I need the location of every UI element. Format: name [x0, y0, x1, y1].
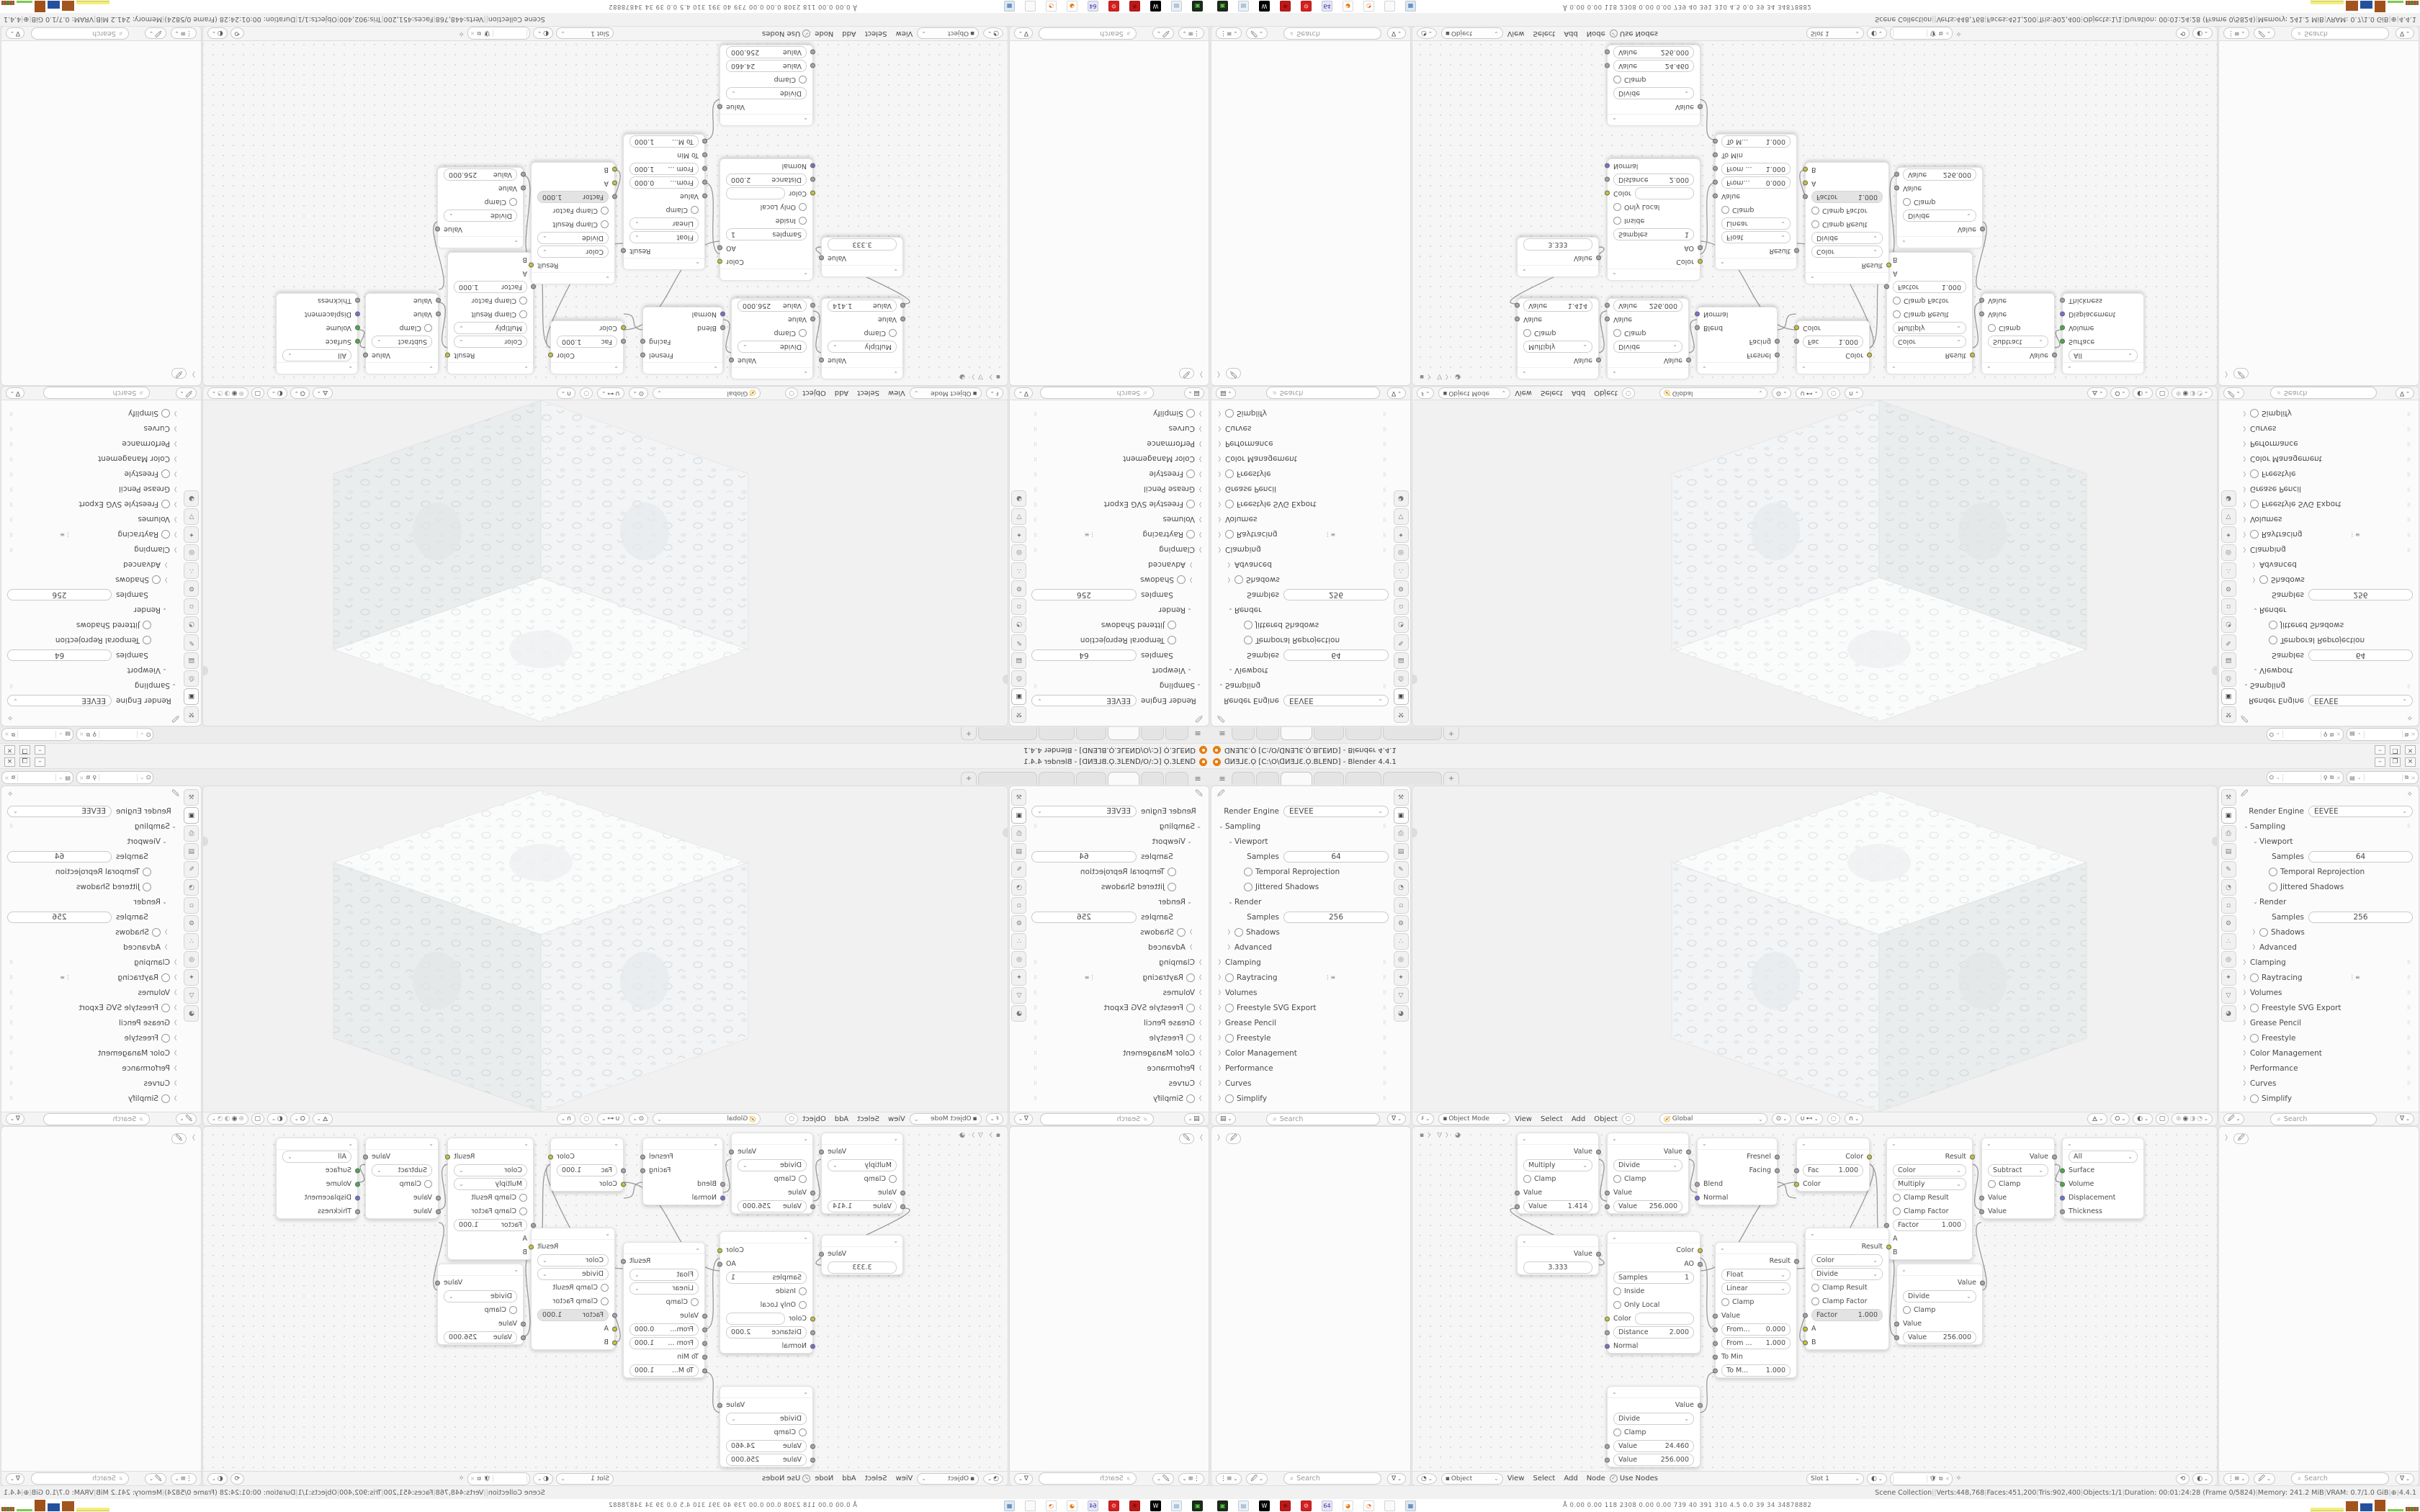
properties-tab-8-icon[interactable]: ∴	[2221, 562, 2236, 579]
shader-node-math-divide-c[interactable]: ⌄ValueDivide⌄ClampValue24.460Value256.00…	[720, 1386, 813, 1467]
node-socket[interactable]	[1886, 263, 1891, 268]
properties-tab-7-icon[interactable]: ⚙	[184, 580, 200, 597]
unlink-icon[interactable]: ×	[79, 732, 84, 738]
node-socket[interactable]	[702, 166, 707, 171]
material-preview-icon[interactable]: ◐⌄	[1867, 1473, 1887, 1485]
prop-color-management[interactable]: 〉Color Management⠿	[7, 451, 178, 467]
node-socket[interactable]	[1713, 166, 1718, 171]
node-socket[interactable]	[1713, 180, 1718, 185]
prop-clamping[interactable]: 〉Clamping⠿	[7, 542, 178, 557]
maximize-button[interactable]: ❐	[19, 745, 30, 755]
properties-tab-4-icon[interactable]: ✎	[184, 634, 200, 651]
node-socket[interactable]	[355, 325, 360, 330]
node-select[interactable]: Divide⌄	[726, 87, 807, 99]
taskbar-app-notepad[interactable]: ▤	[1171, 1, 1182, 12]
node-socket[interactable]	[1794, 339, 1799, 344]
gizmo-toggle-button[interactable]: 🜁⌄	[2087, 387, 2107, 399]
viewlayer-selector[interactable]: ▤⌄ ⧉ ×	[2347, 728, 2419, 741]
node-socket[interactable]	[810, 1190, 815, 1195]
properties-tab-6-icon[interactable]: ▫	[184, 598, 200, 615]
shading-icon-2[interactable]: ◑	[2190, 1115, 2195, 1122]
prop-render[interactable]: ⌄Render	[2242, 894, 2413, 909]
properties-tab-3-icon[interactable]: ▤	[1394, 652, 1409, 669]
shader-type-select[interactable]: ▪ Object⌄	[917, 28, 979, 40]
prop-freestyle-svg-export[interactable]: 〉Freestyle SVG Export⠿	[1217, 1000, 1389, 1015]
search-input[interactable]: ⌕ Search	[2291, 27, 2389, 40]
node-value-field[interactable]: To M...1.000	[629, 135, 699, 148]
prop-grease-pencil[interactable]: 〉Grease Pencil⠿	[1031, 482, 1203, 497]
taskbar-app-settings-red-2[interactable]: ⚙	[1301, 1500, 1312, 1511]
properties-tab-5-icon[interactable]: ◔	[184, 616, 200, 633]
properties-tab-9-icon[interactable]: ◎	[1394, 544, 1409, 561]
node-collapse-icon[interactable]: ⌄	[1982, 362, 2054, 374]
copy-icon[interactable]: ⧉	[86, 774, 91, 781]
prop-samples[interactable]: Samples64	[7, 849, 178, 864]
prop-simplify[interactable]: 〉Simplify⠿	[7, 406, 178, 421]
prop-jittered-shadows[interactable]: Jittered Shadows	[1217, 618, 1389, 633]
properties-tab-12-icon[interactable]: ◕	[184, 1005, 200, 1022]
node-socket[interactable]	[2060, 325, 2065, 330]
node-socket[interactable]	[1970, 353, 1975, 358]
node-slider[interactable]: Samples1	[726, 1272, 807, 1284]
taskbar-app-firefox[interactable]: ◔	[1046, 1, 1057, 12]
node-collapse-icon[interactable]: ⌄	[1897, 236, 1982, 248]
prop-curves[interactable]: 〉Curves⠿	[2242, 421, 2413, 436]
prop-shadows[interactable]: 〉Shadows	[2242, 572, 2413, 588]
shader-view-menu[interactable]: View	[1507, 30, 1525, 37]
copy-icon[interactable]: ⧉	[2405, 731, 2409, 738]
node-collapse-icon[interactable]: ⌄	[822, 367, 902, 379]
node-collapse-icon[interactable]: ⌄	[1518, 1236, 1598, 1247]
prop-advanced[interactable]: 〉Advanced	[7, 940, 178, 955]
prop-render[interactable]: ⌄Render	[7, 894, 178, 909]
toolbar-handle[interactable]	[1003, 675, 1008, 684]
node-checkbox[interactable]	[799, 203, 807, 211]
node-socket[interactable]	[640, 1154, 645, 1159]
node-checkbox[interactable]	[889, 1175, 897, 1183]
collapsed-panel[interactable]: 〉 🖉	[2225, 369, 2249, 380]
prop-performance[interactable]: 〉Performance⠿	[1217, 1061, 1389, 1076]
properties-tab-12-icon[interactable]: ◕	[1012, 490, 1027, 507]
shader-add-menu[interactable]: Add	[842, 1475, 856, 1482]
node-socket[interactable]	[1979, 312, 1984, 317]
unlink-icon[interactable]: ×	[470, 30, 475, 37]
prop-grease-pencil[interactable]: 〉Grease Pencil⠿	[1031, 1015, 1203, 1030]
properties-tab-3-icon[interactable]: ▤	[1012, 652, 1027, 669]
render-preview-button[interactable]: ▢	[251, 1113, 264, 1125]
copy-icon[interactable]: ⧉	[12, 731, 16, 738]
shader-node-value[interactable]: ⌄Value3.333	[1517, 237, 1599, 277]
node-checkbox[interactable]	[1613, 1175, 1621, 1183]
prop-freestyle-svg-export[interactable]: 〉Freestyle SVG Export⠿	[2242, 497, 2413, 512]
shader-node-math-multiply[interactable]: ⌄ValueMultiply⌄ClampValueValue1.414	[821, 298, 903, 379]
prop-grease-pencil[interactable]: 〉Grease Pencil⠿	[1217, 482, 1389, 497]
shader-node-ambient-occlusion[interactable]: ⌄ColorAOSamples1InsideOnly LocalColorDis…	[1607, 1231, 1700, 1354]
search-input[interactable]: ⌕ Search	[1039, 27, 1137, 40]
copy-icon[interactable]: ⧉	[12, 774, 16, 781]
node-socket[interactable]	[531, 1223, 536, 1228]
node-socket[interactable]	[521, 1335, 526, 1340]
node-collapse-icon[interactable]: ⌄	[1716, 258, 1796, 269]
properties-tab-10-icon[interactable]: ✦	[1012, 969, 1027, 986]
properties-tab-10-icon[interactable]: ✦	[2221, 526, 2236, 543]
shader-node-map-range[interactable]: ⌄ResultFloat⌄Linear⌄ClampValueFrom...0.0…	[623, 134, 705, 270]
node-checkbox[interactable]	[1893, 310, 1901, 318]
node-select[interactable]: All⌄	[2069, 1151, 2138, 1163]
node-socket[interactable]	[1515, 303, 1520, 308]
shader-view-menu[interactable]: View	[1507, 1475, 1525, 1482]
node-checkbox[interactable]	[424, 324, 432, 332]
node-select[interactable]: Divide⌄	[444, 210, 517, 222]
prop-shadows[interactable]: 〉Shadows	[1217, 572, 1389, 588]
properties-tab-10-icon[interactable]: ✦	[1394, 969, 1409, 986]
prop-color-management[interactable]: 〉Color Management⠿	[2242, 1045, 2413, 1061]
prop-curves[interactable]: 〉Curves⠿	[1031, 1076, 1203, 1091]
minimize-button[interactable]: –	[35, 745, 45, 755]
node-select[interactable]: Color⌄	[537, 1254, 609, 1266]
filter-button[interactable]: ∇⌄	[1014, 28, 1033, 40]
shader-add-menu[interactable]: Add	[842, 30, 856, 37]
node-socket[interactable]	[819, 256, 824, 261]
properties-tab-12-icon[interactable]: ◕	[184, 490, 200, 507]
tray-icon-brown-1[interactable]	[2346, 1501, 2358, 1511]
properties-tab-8-icon[interactable]: ∴	[1012, 933, 1027, 950]
shader-node-math-divide-a[interactable]: ⌄ValueDivide⌄ClampValueValue256.000	[731, 1133, 813, 1214]
editor-type-button[interactable]: ⋮≡⌄	[1216, 28, 1242, 40]
node-value-field[interactable]: Value256.000	[738, 300, 807, 312]
sidebar-handle[interactable]	[2212, 837, 2217, 846]
node-socket[interactable]	[355, 1195, 360, 1200]
tray-icon-blue[interactable]	[2360, 1, 2372, 9]
prop-raytracing[interactable]: 〉Raytracing⋮≡⠿	[2242, 970, 2413, 985]
node-value-field[interactable]: 3.333	[828, 238, 897, 251]
node-socket[interactable]	[521, 172, 526, 177]
node-socket[interactable]	[810, 1344, 815, 1349]
taskbar-app-ghost[interactable]: ·	[1025, 1, 1036, 12]
node-checkbox[interactable]	[1811, 1284, 1819, 1292]
node-socket[interactable]	[529, 1244, 534, 1249]
pin-icon[interactable]: ⚲	[2323, 732, 2328, 738]
taskbar-app-terminal[interactable]: ▣	[1192, 1500, 1203, 1511]
shader-node-ambient-occlusion[interactable]: ⌄ColorAOSamples1InsideOnly LocalColorDis…	[1607, 158, 1700, 281]
node-checkbox[interactable]	[799, 1175, 807, 1183]
properties-tab-2-icon[interactable]: ⎙	[2221, 825, 2236, 842]
display-mode-button[interactable]: 🖉⌄	[2254, 28, 2275, 40]
node-checkbox[interactable]	[799, 1287, 807, 1295]
node-checkbox[interactable]	[601, 1284, 609, 1292]
tray-icon-brown-1[interactable]	[62, 1501, 74, 1511]
editor-type-button[interactable]: ♯⌄	[1417, 1113, 1434, 1125]
properties-tab-1-icon[interactable]: ▣	[2221, 688, 2236, 705]
shading-icon-3[interactable]: ◔	[2197, 390, 2202, 397]
node-checkbox[interactable]	[1613, 76, 1621, 84]
taskbar-app-ghost[interactable]: ·	[1384, 1, 1395, 12]
prop-raytracing[interactable]: 〉Raytracing⋮≡⠿	[7, 527, 178, 542]
properties-tab-7-icon[interactable]: ⚙	[1012, 915, 1027, 932]
node-socket[interactable]	[819, 358, 824, 363]
node-value-field[interactable]: Distance2.000	[1613, 1326, 1694, 1338]
shading-mode-group[interactable]: ⊕◉◑◔⌄	[207, 387, 248, 399]
node-socket[interactable]	[612, 194, 617, 199]
maximize-button[interactable]: ❐	[2390, 757, 2401, 767]
node-socket[interactable]	[819, 1149, 824, 1154]
render-engine-select[interactable]: EEVEE⌄	[2308, 806, 2413, 817]
properties-tab-6-icon[interactable]: ▫	[184, 897, 200, 914]
properties-tab-9-icon[interactable]: ◎	[1012, 951, 1027, 968]
node-checkbox[interactable]	[799, 329, 807, 337]
properties-tab-2-icon[interactable]: ⎙	[1012, 670, 1027, 687]
node-socket[interactable]	[720, 1182, 725, 1187]
material-preview-icon[interactable]: ◐⌄	[1867, 28, 1887, 40]
node-value-field[interactable]: 3.333	[1523, 238, 1592, 251]
properties-tab-2-icon[interactable]: ⎙	[1012, 825, 1027, 842]
node-select[interactable]: Subtract⌄	[1988, 336, 2048, 348]
node-socket[interactable]	[1515, 1190, 1520, 1195]
use-nodes-checkbox[interactable]: ✓Use Nodes	[762, 1475, 810, 1482]
properties-tab-11-icon[interactable]: ▽	[184, 508, 200, 525]
prop-shadows[interactable]: 〉Shadows	[7, 572, 178, 588]
workspace-tab-3[interactable]	[1108, 727, 1139, 740]
properties-tab-11-icon[interactable]: ▽	[1394, 987, 1409, 1004]
editor-type-button[interactable]: 🖉⌄	[2223, 387, 2244, 399]
collapsed-panel[interactable]: 〉 🖉	[2225, 1133, 2249, 1144]
editor-type-button[interactable]: ◔⌄	[1417, 1473, 1437, 1485]
viewport-object-menu[interactable]: Object	[802, 1115, 826, 1123]
node-socket[interactable]	[436, 1209, 441, 1214]
node-socket[interactable]	[1515, 1204, 1520, 1209]
node-checkbox[interactable]	[799, 217, 807, 225]
filter-button[interactable]: ∇⌄	[1014, 387, 1033, 399]
node-checkbox[interactable]	[1613, 1301, 1621, 1309]
properties-tab-12-icon[interactable]: ◕	[1012, 1005, 1027, 1022]
properties-tab-12-icon[interactable]: ◕	[1394, 490, 1409, 507]
node-collapse-icon[interactable]: ⌄	[1698, 362, 1777, 374]
add-workspace-button[interactable]: +	[961, 772, 977, 785]
node-collapse-icon[interactable]: ⌄	[1887, 362, 1972, 374]
taskbar-app-blender[interactable]: ◕	[1067, 1, 1077, 12]
node-slider[interactable]: Factor1.000	[454, 1219, 527, 1231]
prop-advanced[interactable]: 〉Advanced	[7, 557, 178, 572]
prop-freestyle[interactable]: 〉Freestyle⠿	[1217, 1030, 1389, 1045]
shading-icon-3[interactable]: ◔	[2197, 1115, 2202, 1122]
node-checkbox[interactable]	[1613, 203, 1621, 211]
node-checkbox[interactable]	[509, 1306, 517, 1314]
properties-tab-11-icon[interactable]: ▽	[2221, 508, 2236, 525]
prop-viewport[interactable]: ⌄Viewport	[1031, 663, 1203, 678]
maximize-button[interactable]: ❐	[19, 757, 30, 767]
shading-icon-0[interactable]: ⊕	[2176, 390, 2182, 397]
node-socket[interactable]	[1713, 194, 1718, 199]
node-collapse-icon[interactable]: ⌄	[1608, 1232, 1700, 1243]
node-checkbox[interactable]	[1613, 217, 1621, 225]
taskbar-app-blender[interactable]: ◕	[1343, 1500, 1353, 1511]
prop-color-management[interactable]: 〉Color Management⠿	[1217, 451, 1389, 467]
node-select[interactable]: Divide⌄	[726, 1413, 807, 1425]
viewport-add-menu[interactable]: Add	[1572, 390, 1585, 397]
node-socket[interactable]	[1605, 1330, 1610, 1335]
mode-select[interactable]: ▪ Object Mode⌄	[910, 387, 982, 399]
node-socket[interactable]	[621, 1168, 626, 1173]
prop-samples[interactable]: Samples256	[7, 909, 178, 924]
properties-tab-2-icon[interactable]: ⎙	[2221, 670, 2236, 687]
node-select[interactable]: Divide⌄	[1811, 1268, 1883, 1280]
prop-freestyle-svg-export[interactable]: 〉Freestyle SVG Export⠿	[7, 497, 178, 512]
prop-freestyle[interactable]: 〉Freestyle⠿	[2242, 1030, 2413, 1045]
tray-icon-pattern[interactable]	[1, 1, 14, 5]
node-collapse-icon[interactable]: ⌄	[1608, 1133, 1688, 1145]
prop-temporal-reprojection[interactable]: Temporal Reprojection	[1217, 633, 1389, 648]
properties-tab-6-icon[interactable]: ▫	[1012, 897, 1027, 914]
viewport-select-menu[interactable]: Select	[857, 390, 879, 397]
node-socket[interactable]	[1794, 325, 1799, 330]
copy-icon[interactable]: ⧉	[2405, 774, 2409, 781]
node-select[interactable]: Multiply⌄	[1893, 1178, 1966, 1190]
properties-tab-8-icon[interactable]: ∴	[2221, 933, 2236, 950]
node-socket[interactable]	[1713, 1368, 1718, 1373]
slot-select[interactable]: Slot 1⌄	[1806, 1473, 1864, 1485]
prop-grease-pencil[interactable]: 〉Grease Pencil⠿	[2242, 482, 2413, 497]
node-checkbox[interactable]	[519, 1194, 527, 1202]
workspace-tab-4[interactable]	[1314, 727, 1344, 740]
node-socket[interactable]	[1775, 1154, 1780, 1159]
node-socket[interactable]	[1803, 1313, 1808, 1318]
properties-tab-4-icon[interactable]: ✎	[1394, 634, 1409, 651]
node-socket[interactable]	[445, 353, 450, 358]
properties-tab-0-icon[interactable]: ⚒	[2221, 789, 2236, 806]
node-select[interactable]: Subtract⌄	[1988, 1164, 2048, 1176]
unlink-icon[interactable]: ×	[1945, 1475, 1950, 1482]
node-collapse-icon[interactable]: ⌄	[732, 1133, 812, 1145]
properties-tab-1-icon[interactable]: ▣	[1394, 807, 1409, 824]
scene-name-field[interactable]	[2282, 774, 2321, 781]
pin-icon[interactable]: ✧	[458, 30, 464, 37]
node-socket[interactable]	[1605, 1316, 1610, 1321]
workspace-tab-6[interactable]	[978, 772, 1037, 785]
node-socket[interactable]	[621, 1182, 626, 1187]
node-collapse-icon[interactable]: ⌄	[1518, 1133, 1598, 1145]
editor-type-button[interactable]: ◔⌄	[983, 1473, 1003, 1485]
node-socket[interactable]	[1803, 167, 1808, 172]
viewlayer-name-field[interactable]	[2364, 774, 2403, 781]
node-select[interactable]: Linear⌄	[1721, 1282, 1791, 1295]
node-socket[interactable]	[1894, 1321, 1899, 1326]
node-collapse-icon[interactable]: ⌄	[643, 362, 722, 374]
close-button[interactable]: ×	[2405, 745, 2416, 755]
pin-icon[interactable]: ✧	[2407, 791, 2413, 798]
node-socket[interactable]	[1894, 186, 1899, 191]
properties-tab-8-icon[interactable]: ∴	[1394, 562, 1409, 579]
gizmo-toggle-button[interactable]: 🜁⌄	[2087, 1113, 2107, 1125]
search-input[interactable]: ⌕ Search	[1040, 1113, 1154, 1125]
node-socket[interactable]	[355, 312, 360, 317]
prop-clamping[interactable]: 〉Clamping⠿	[1217, 955, 1389, 970]
scene-name-field[interactable]	[99, 731, 138, 738]
shader-node-math-divide-b[interactable]: ⌄ValueDivide⌄ClampValueValue256.000	[1896, 1264, 1983, 1345]
workspace-tab-5[interactable]	[1345, 727, 1381, 740]
prop-raytracing[interactable]: 〉Raytracing⋮≡⠿	[1217, 527, 1389, 542]
search-input[interactable]: ⌕ Search	[1266, 1113, 1380, 1125]
proportional-falloff-button[interactable]: ∩⌄	[1845, 1113, 1863, 1125]
node-slider[interactable]: Factor1.000	[454, 281, 527, 293]
node-socket[interactable]	[521, 186, 526, 191]
shading-icon-0[interactable]: ⊕	[2176, 1115, 2182, 1122]
prop-volumes[interactable]: 〉Volumes⠿	[1217, 985, 1389, 1000]
editor-type-button[interactable]: 🖉⌄	[2223, 1113, 2244, 1125]
render-preview-button[interactable]: ▢	[2156, 1113, 2169, 1125]
properties-tab-5-icon[interactable]: ◔	[1394, 879, 1409, 896]
material-preview-icon[interactable]: ◐⌄	[533, 1473, 553, 1485]
editor-type-button[interactable]: ⋮≡⌄	[2223, 1473, 2249, 1485]
node-collapse-icon[interactable]: ⌄	[720, 114, 812, 125]
node-value-field[interactable]: From ...1.000	[629, 1337, 699, 1349]
shader-select-menu[interactable]: Select	[1533, 1475, 1555, 1482]
node-socket[interactable]	[720, 312, 725, 317]
node-socket[interactable]	[1894, 172, 1899, 177]
node-socket[interactable]	[612, 1313, 617, 1318]
prop-sampling[interactable]: ⌄Sampling⠿	[1217, 678, 1389, 693]
pivot-point-button[interactable]: ⊙⌄	[1772, 1113, 1791, 1125]
scene-selector[interactable]: ⛭⌄ ⚲ ⧉ ×	[2267, 771, 2344, 784]
workspace-tab-4[interactable]	[1076, 772, 1106, 785]
shader-node-mix-multiply[interactable]: ⌄ResultColor⌄Multiply⌄Clamp ResultClamp …	[447, 1138, 534, 1260]
prop-jittered-shadows[interactable]: Jittered Shadows	[7, 618, 178, 633]
editor-type-button[interactable]: ⋮≡⌄	[1178, 28, 1204, 40]
node-socket[interactable]	[1713, 1327, 1718, 1332]
viewport-object-menu[interactable]: Object	[802, 390, 826, 397]
shader-node-mix-multiply[interactable]: ⌄ResultColor⌄Multiply⌄Clamp ResultClamp …	[1886, 252, 1973, 374]
node-collapse-icon[interactable]: ⌄	[624, 1243, 704, 1254]
copy-icon[interactable]: ⧉	[1939, 1475, 1943, 1482]
proportional-edit-button[interactable]: ◌	[580, 1113, 593, 1125]
properties-tab-3-icon[interactable]: ▤	[184, 843, 200, 860]
properties-tab-1-icon[interactable]: ▣	[1012, 807, 1027, 824]
prop-viewport[interactable]: ⌄Viewport	[1217, 834, 1389, 849]
node-slider[interactable]: Fac1.000	[1803, 336, 1863, 348]
node-socket[interactable]	[1605, 1457, 1610, 1462]
prop-render[interactable]: ⌄Render	[1031, 894, 1203, 909]
taskbar-app-blender[interactable]: ◕	[1067, 1500, 1077, 1511]
collapsed-panel[interactable]: 〉 🖉	[171, 1133, 195, 1144]
node-checkbox[interactable]	[1721, 1298, 1729, 1306]
node-collapse-icon[interactable]: ⌄	[643, 1138, 722, 1150]
node-socket[interactable]	[1605, 1204, 1610, 1209]
pin-icon[interactable]: ⚲	[2323, 775, 2328, 781]
node-socket[interactable]	[1698, 104, 1703, 109]
scene-selector[interactable]: ⛭⌄ ⚲ ⧉ ×	[76, 728, 154, 741]
node-value-field[interactable]: To M...1.000	[1721, 135, 1791, 148]
workspace-tab-4[interactable]	[1314, 772, 1344, 785]
node-socket[interactable]	[1695, 1195, 1700, 1200]
shading-icon-0[interactable]: ⊕	[238, 1115, 244, 1122]
shader-type-select[interactable]: ▪ Object⌄	[1441, 28, 1503, 40]
prop-freestyle[interactable]: 〉Freestyle⠿	[7, 467, 178, 482]
shading-icon-2[interactable]: ◑	[225, 390, 230, 397]
taskbar-app-firefox[interactable]: ◔	[1363, 1500, 1374, 1511]
tray-icon-brown-1[interactable]	[2346, 1, 2358, 11]
snap-button[interactable]: ∪⊷⌄	[1796, 1113, 1822, 1125]
prop-volumes[interactable]: 〉Volumes⠿	[2242, 985, 2413, 1000]
properties-tab-3-icon[interactable]: ▤	[2221, 843, 2236, 860]
taskbar-app-terminal[interactable]: ▣	[1217, 1, 1228, 12]
properties-tab-0-icon[interactable]: ⚒	[2221, 706, 2236, 723]
node-select[interactable]: Color⌄	[1811, 246, 1883, 258]
node-socket[interactable]	[1794, 1259, 1799, 1264]
properties-tab-4-icon[interactable]: ✎	[184, 861, 200, 878]
properties-tab-7-icon[interactable]: ⚙	[2221, 580, 2236, 597]
shader-node-math-divide-a[interactable]: ⌄ValueDivide⌄ClampValueValue256.000	[1607, 298, 1689, 379]
node-checkbox[interactable]	[1523, 1175, 1531, 1183]
properties-tab-10-icon[interactable]: ✦	[1394, 526, 1409, 543]
